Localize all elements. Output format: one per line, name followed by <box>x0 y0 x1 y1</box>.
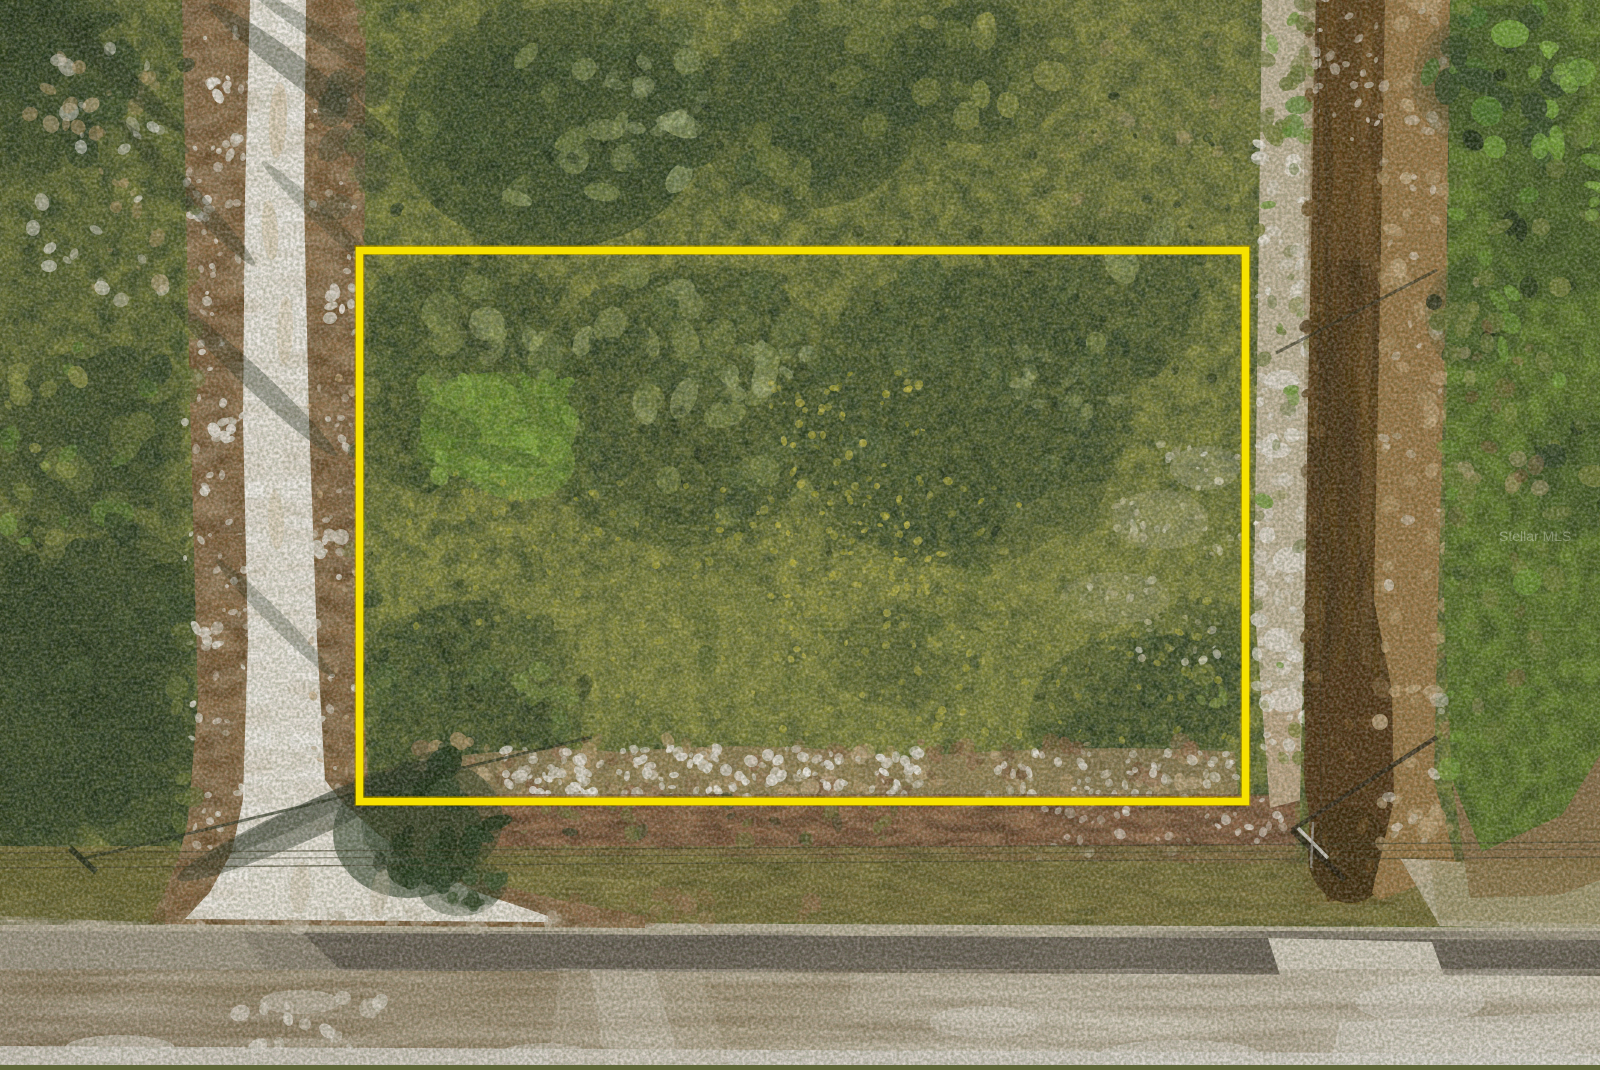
svg-text:Stellar MLS: Stellar MLS <box>1499 528 1571 544</box>
